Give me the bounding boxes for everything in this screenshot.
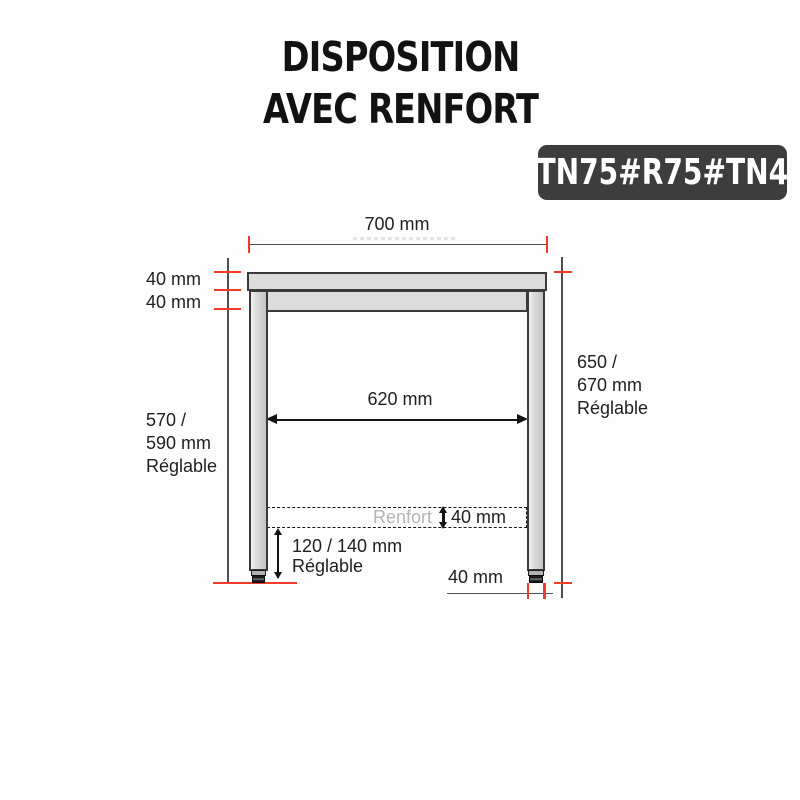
dim-line-right-height — [561, 257, 563, 598]
dim-label-foot-width: 40 mm — [448, 567, 503, 588]
arrow-head-down-icon — [274, 572, 282, 579]
arrow-head-down-icon — [439, 522, 447, 529]
red-tick — [527, 583, 530, 599]
arrow-head-up-icon — [274, 528, 282, 535]
dim-label-left-height: 570 / 590 mm Réglable — [146, 409, 217, 478]
watermark-smudge — [353, 237, 456, 240]
red-tick — [248, 236, 251, 253]
dim-label-foot-adjust-2: Réglable — [292, 556, 363, 576]
product-code-label: TN75#R75#TN4 — [537, 152, 789, 193]
right-height-line2: 670 mm — [577, 374, 648, 397]
dim-label-right-height: 650 / 670 mm Réglable — [577, 351, 648, 420]
red-tick — [554, 271, 572, 274]
dim-label-top-thickness: 40 mm — [146, 269, 201, 290]
renfort-label: Renfort — [330, 507, 432, 528]
dim-line-top-width — [249, 244, 547, 246]
dim-label-inner-width: 620 mm — [300, 389, 500, 410]
left-height-line3: Réglable — [146, 455, 217, 478]
red-tick — [554, 582, 572, 585]
table-top — [247, 272, 547, 291]
diagram-stage: DISPOSITION AVEC RENFORT TN75#R75#TN4 70… — [0, 0, 800, 800]
table-front-rail — [266, 290, 528, 312]
left-height-line1: 570 / — [146, 409, 217, 432]
dim-label-rail-thickness: 40 mm — [146, 292, 201, 313]
dim-arrow-inner-width — [273, 419, 521, 421]
right-height-line1: 650 / — [577, 351, 648, 374]
arrow-head-left-icon — [266, 414, 277, 424]
page-title-line2: AVEC RENFORT — [73, 85, 729, 133]
red-tick — [214, 289, 241, 292]
right-height-line3: Réglable — [577, 397, 648, 420]
product-code-badge: TN75#R75#TN4 — [538, 145, 787, 200]
red-tick — [214, 308, 241, 311]
dim-label-foot-adjust-1: 120 / 140 mm — [292, 536, 402, 556]
left-height-line2: 590 mm — [146, 432, 217, 455]
arrow-head-up-icon — [439, 506, 447, 513]
red-tick — [214, 271, 241, 274]
page-title-line1: DISPOSITION — [73, 33, 729, 81]
dim-line-foot-width — [447, 593, 553, 595]
red-tick — [546, 236, 549, 253]
dim-label-renfort-thickness: 40 mm — [451, 507, 506, 528]
red-tick — [543, 583, 546, 599]
table-leg-right — [527, 290, 546, 571]
table-leg-left — [249, 290, 268, 571]
dim-label-top-width: 700 mm — [297, 214, 497, 235]
foot-pad-right — [529, 575, 543, 583]
foot-pad-left — [252, 575, 266, 583]
